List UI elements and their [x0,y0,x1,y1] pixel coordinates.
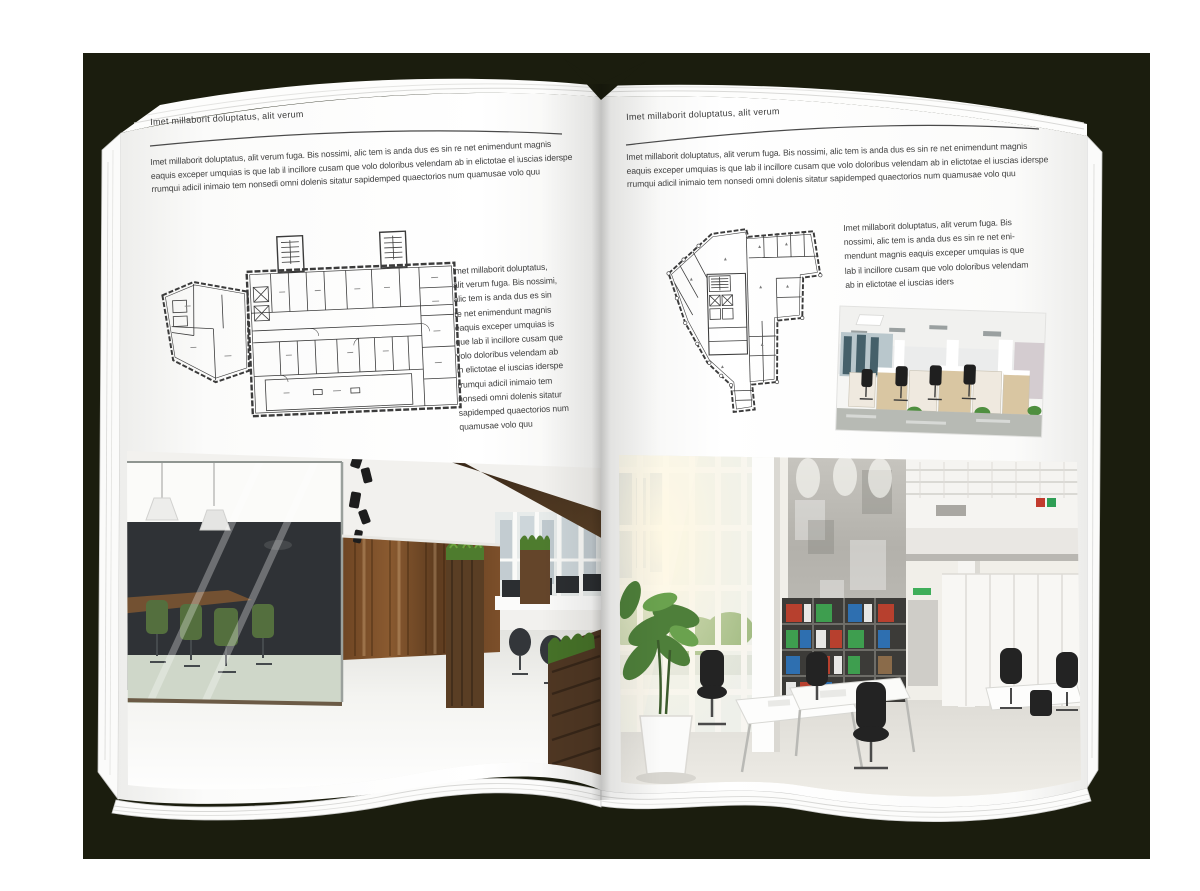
mockup-canvas: Imet millaborit doluptatus, alit verum I… [0,0,1200,891]
open-magazine [0,0,1200,891]
office-photo-right [610,448,1085,810]
spine-gutter-shadow [541,84,661,800]
office-photo-left [120,445,610,800]
